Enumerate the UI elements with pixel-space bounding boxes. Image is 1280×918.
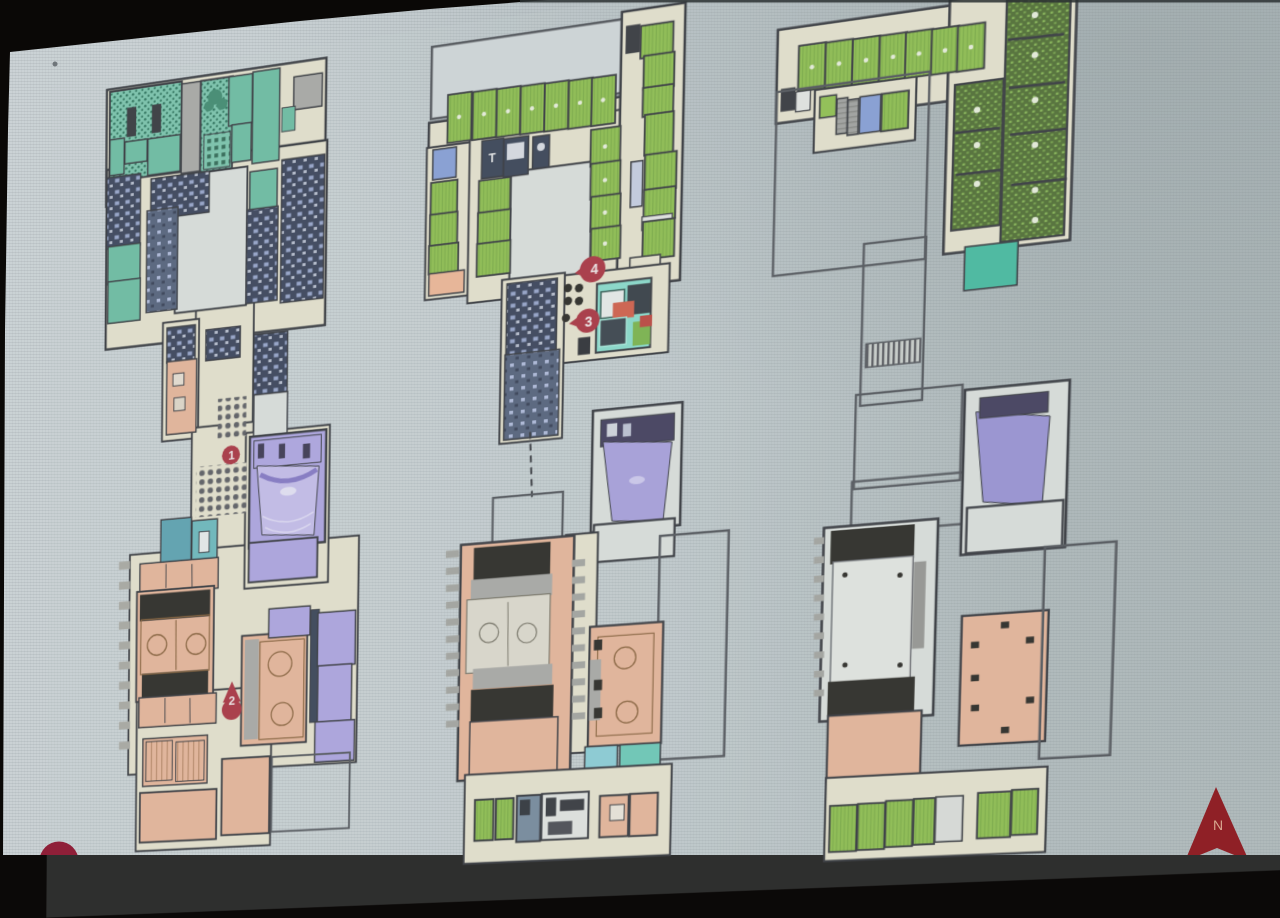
svg-text:N: N [1213, 817, 1223, 833]
